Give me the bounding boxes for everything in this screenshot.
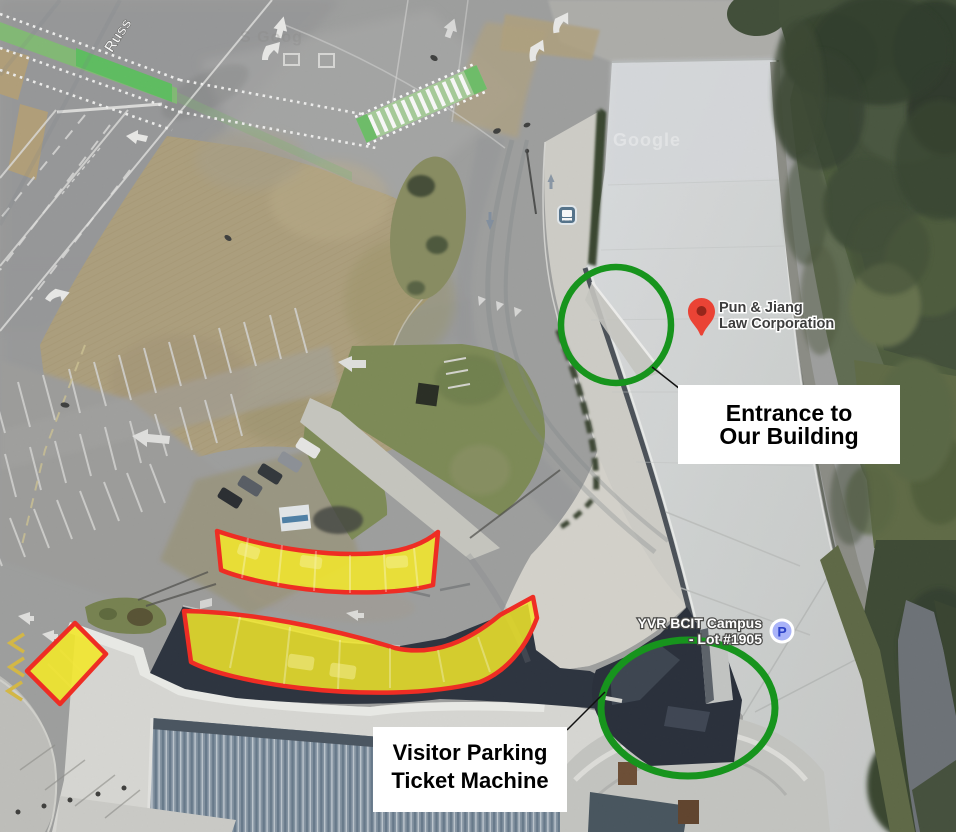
svg-text:Visitor Parking: Visitor Parking: [393, 740, 548, 765]
svg-text:Pun & Jiang: Pun & Jiang: [719, 300, 803, 316]
svg-text:P: P: [777, 624, 786, 640]
svg-text:Our Building: Our Building: [719, 423, 858, 449]
svg-text:Law Corporation: Law Corporation: [719, 316, 834, 332]
svg-text:- Lot #1905: - Lot #1905: [689, 631, 762, 647]
svg-text:YVR BCIT Campus: YVR BCIT Campus: [638, 615, 763, 631]
svg-text:Ticket Machine: Ticket Machine: [391, 768, 548, 793]
